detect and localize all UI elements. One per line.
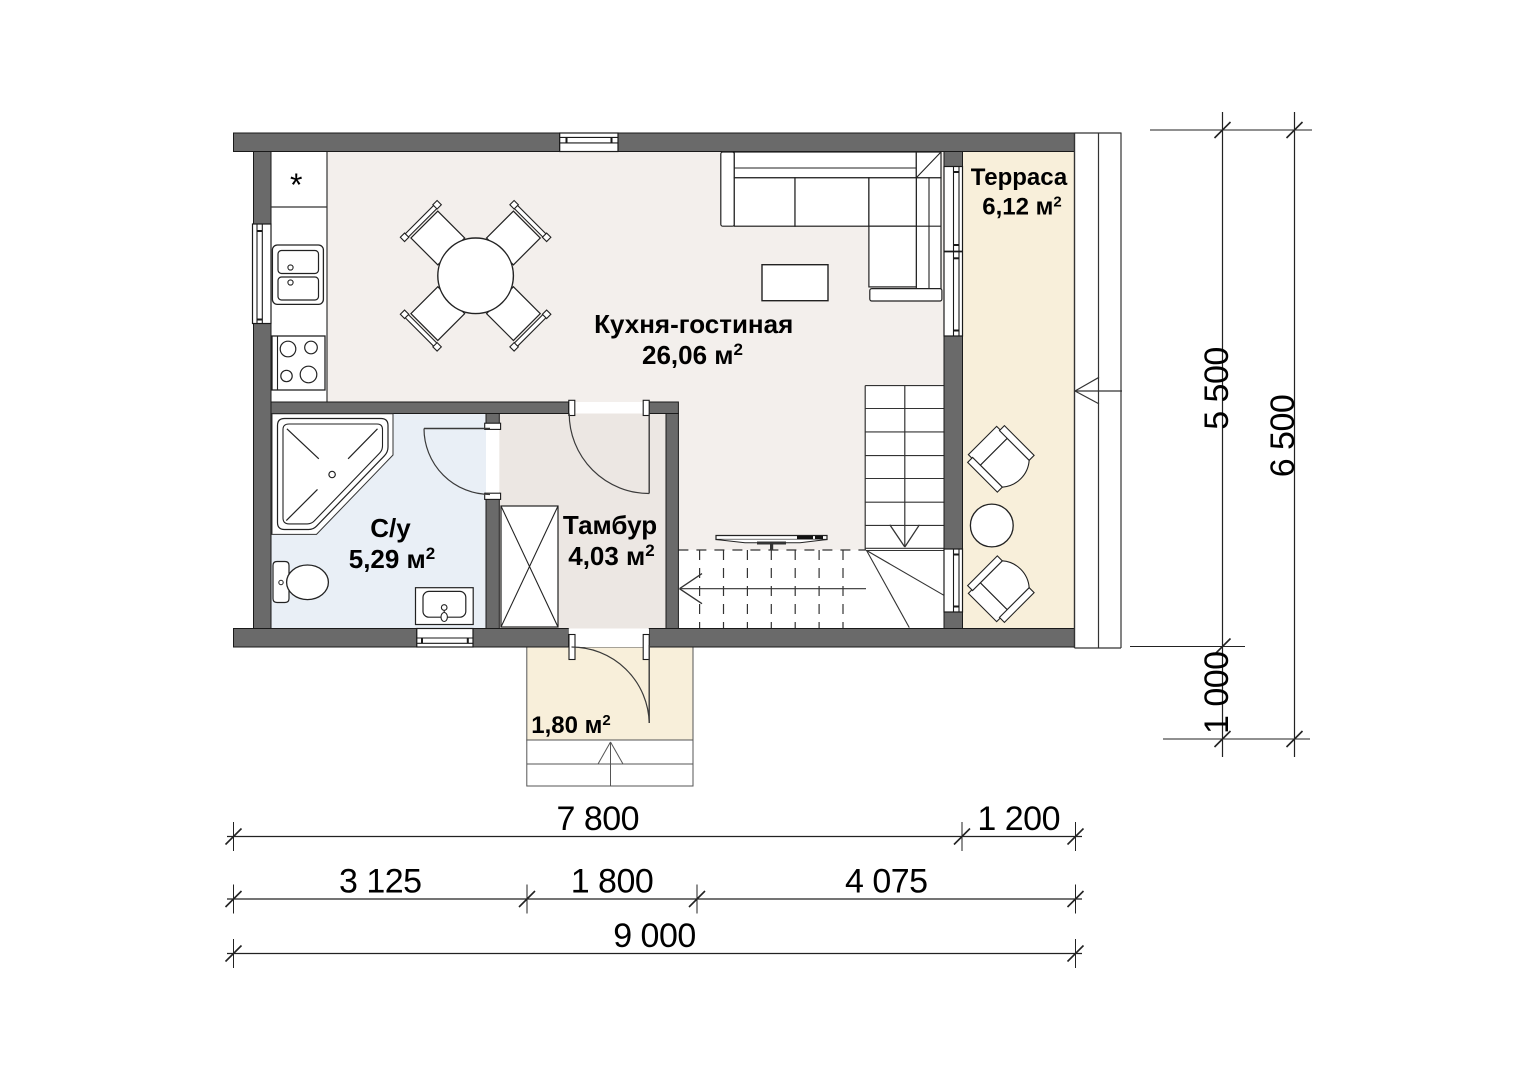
svg-text:Тамбур: Тамбур — [563, 510, 657, 540]
svg-text:*: * — [290, 167, 302, 203]
svg-text:1 000: 1 000 — [1198, 651, 1236, 734]
svg-text:6,12 м2: 6,12 м2 — [982, 194, 1061, 221]
svg-text:5 500: 5 500 — [1198, 347, 1236, 430]
svg-text:3 125: 3 125 — [339, 863, 422, 901]
svg-text:Кухня-гостиная: Кухня-гостиная — [594, 309, 793, 339]
svg-text:Терраса: Терраса — [971, 164, 1068, 191]
svg-text:4 075: 4 075 — [845, 863, 928, 901]
svg-text:1,80 м2: 1,80 м2 — [531, 712, 610, 739]
svg-text:9 000: 9 000 — [613, 917, 696, 955]
svg-text:1 200: 1 200 — [977, 800, 1060, 838]
svg-text:5,29 м2: 5,29 м2 — [349, 544, 436, 574]
svg-text:4,03 м2: 4,03 м2 — [568, 541, 655, 571]
svg-text:1 800: 1 800 — [571, 863, 654, 901]
svg-text:С/у: С/у — [370, 513, 411, 543]
svg-text:7 800: 7 800 — [557, 800, 640, 838]
svg-text:26,06 м2: 26,06 м2 — [642, 340, 743, 370]
svg-text:6 500: 6 500 — [1264, 395, 1302, 478]
